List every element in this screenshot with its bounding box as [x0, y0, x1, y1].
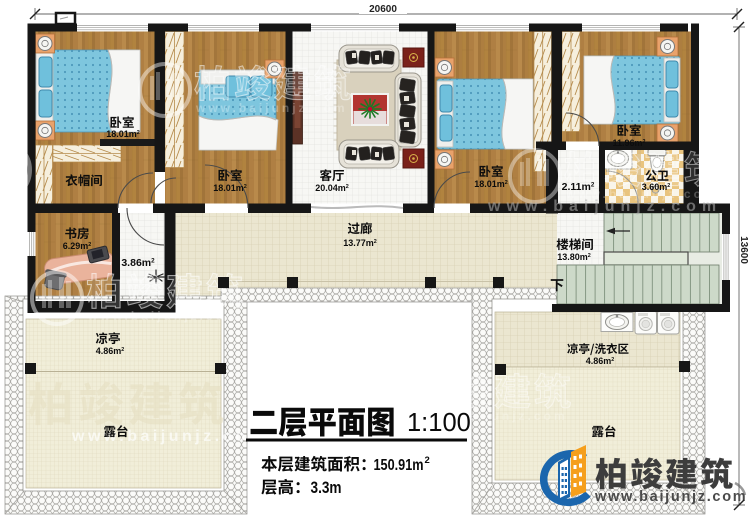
svg-text:3.60m2: 3.60m2: [642, 182, 671, 192]
svg-text:1:100: 1:100: [407, 409, 471, 437]
svg-text:3.3m: 3.3m: [311, 479, 342, 497]
svg-text:4.86m2: 4.86m2: [96, 346, 125, 356]
svg-text:6.29m2: 6.29m2: [63, 241, 92, 251]
svg-text:150.91m: 150.91m: [374, 457, 424, 474]
svg-text:20.04m2: 20.04m2: [315, 183, 349, 193]
svg-text:4.86m2: 4.86m2: [586, 356, 615, 366]
svg-text:www.baijunjz.com: www.baijunjz.com: [195, 101, 348, 115]
svg-text:18.01m2: 18.01m2: [474, 179, 508, 189]
svg-text:20600: 20600: [369, 4, 397, 15]
svg-text:2.11m2: 2.11m2: [562, 181, 595, 193]
svg-text:18.01m2: 18.01m2: [106, 129, 140, 139]
svg-text:18.01m2: 18.01m2: [213, 183, 247, 193]
svg-text:www.baijunjz.com: www.baijunjz.com: [487, 198, 722, 215]
svg-text:13.77m2: 13.77m2: [343, 238, 377, 248]
svg-text:www.baijunjz.com: www.baijunjz.com: [594, 489, 747, 505]
svg-text:www.baijunjz.com: www.baijunjz.com: [71, 428, 266, 445]
svg-text:3.86m2: 3.86m2: [121, 257, 155, 269]
svg-text:www.baijunjz.com: www.baijunjz.com: [87, 309, 240, 323]
svg-text:2: 2: [425, 455, 430, 466]
svg-text:13600: 13600: [738, 236, 749, 264]
svg-text:11.96m2: 11.96m2: [612, 138, 645, 148]
svg-text:13.80m2: 13.80m2: [557, 252, 591, 262]
